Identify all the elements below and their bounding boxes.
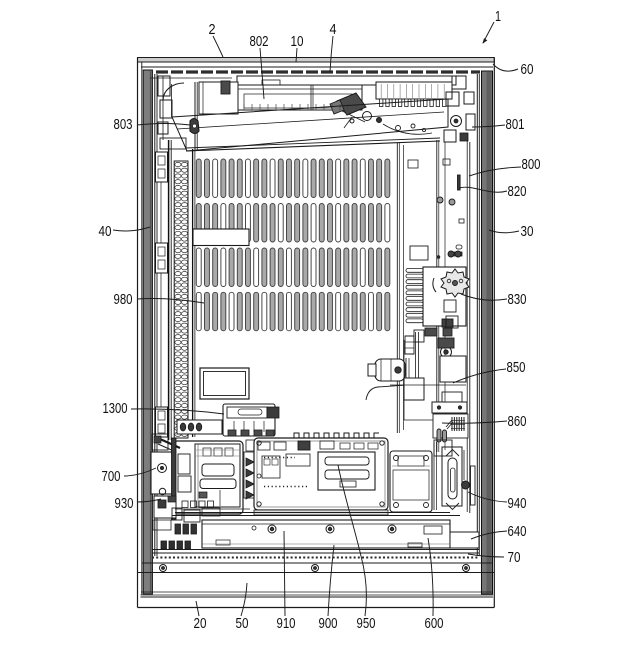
svg-text:820: 820 [508, 184, 527, 200]
svg-text:940: 940 [508, 496, 527, 512]
svg-text:40: 40 [99, 224, 112, 240]
svg-text:860: 860 [508, 414, 527, 430]
svg-text:801: 801 [506, 117, 525, 133]
svg-text:830: 830 [508, 292, 527, 308]
svg-text:600: 600 [425, 616, 444, 632]
svg-text:950: 950 [357, 616, 376, 632]
svg-text:700: 700 [102, 469, 121, 485]
svg-text:50: 50 [236, 616, 249, 632]
svg-text:10: 10 [291, 34, 304, 50]
svg-text:70: 70 [508, 550, 521, 566]
svg-text:20: 20 [194, 616, 207, 632]
svg-text:4: 4 [330, 22, 337, 38]
svg-text:803: 803 [114, 117, 133, 133]
svg-text:1300: 1300 [103, 401, 128, 417]
svg-text:2: 2 [209, 22, 216, 38]
svg-text:640: 640 [508, 524, 527, 540]
svg-text:900: 900 [319, 616, 338, 632]
svg-text:910: 910 [277, 616, 296, 632]
svg-text:930: 930 [115, 496, 134, 512]
svg-text:850: 850 [507, 360, 526, 376]
svg-text:1: 1 [495, 9, 501, 25]
svg-text:60: 60 [521, 62, 534, 78]
svg-text:30: 30 [521, 224, 534, 240]
svg-text:980: 980 [114, 292, 133, 308]
svg-text:800: 800 [522, 157, 541, 173]
svg-text:802: 802 [250, 34, 269, 50]
